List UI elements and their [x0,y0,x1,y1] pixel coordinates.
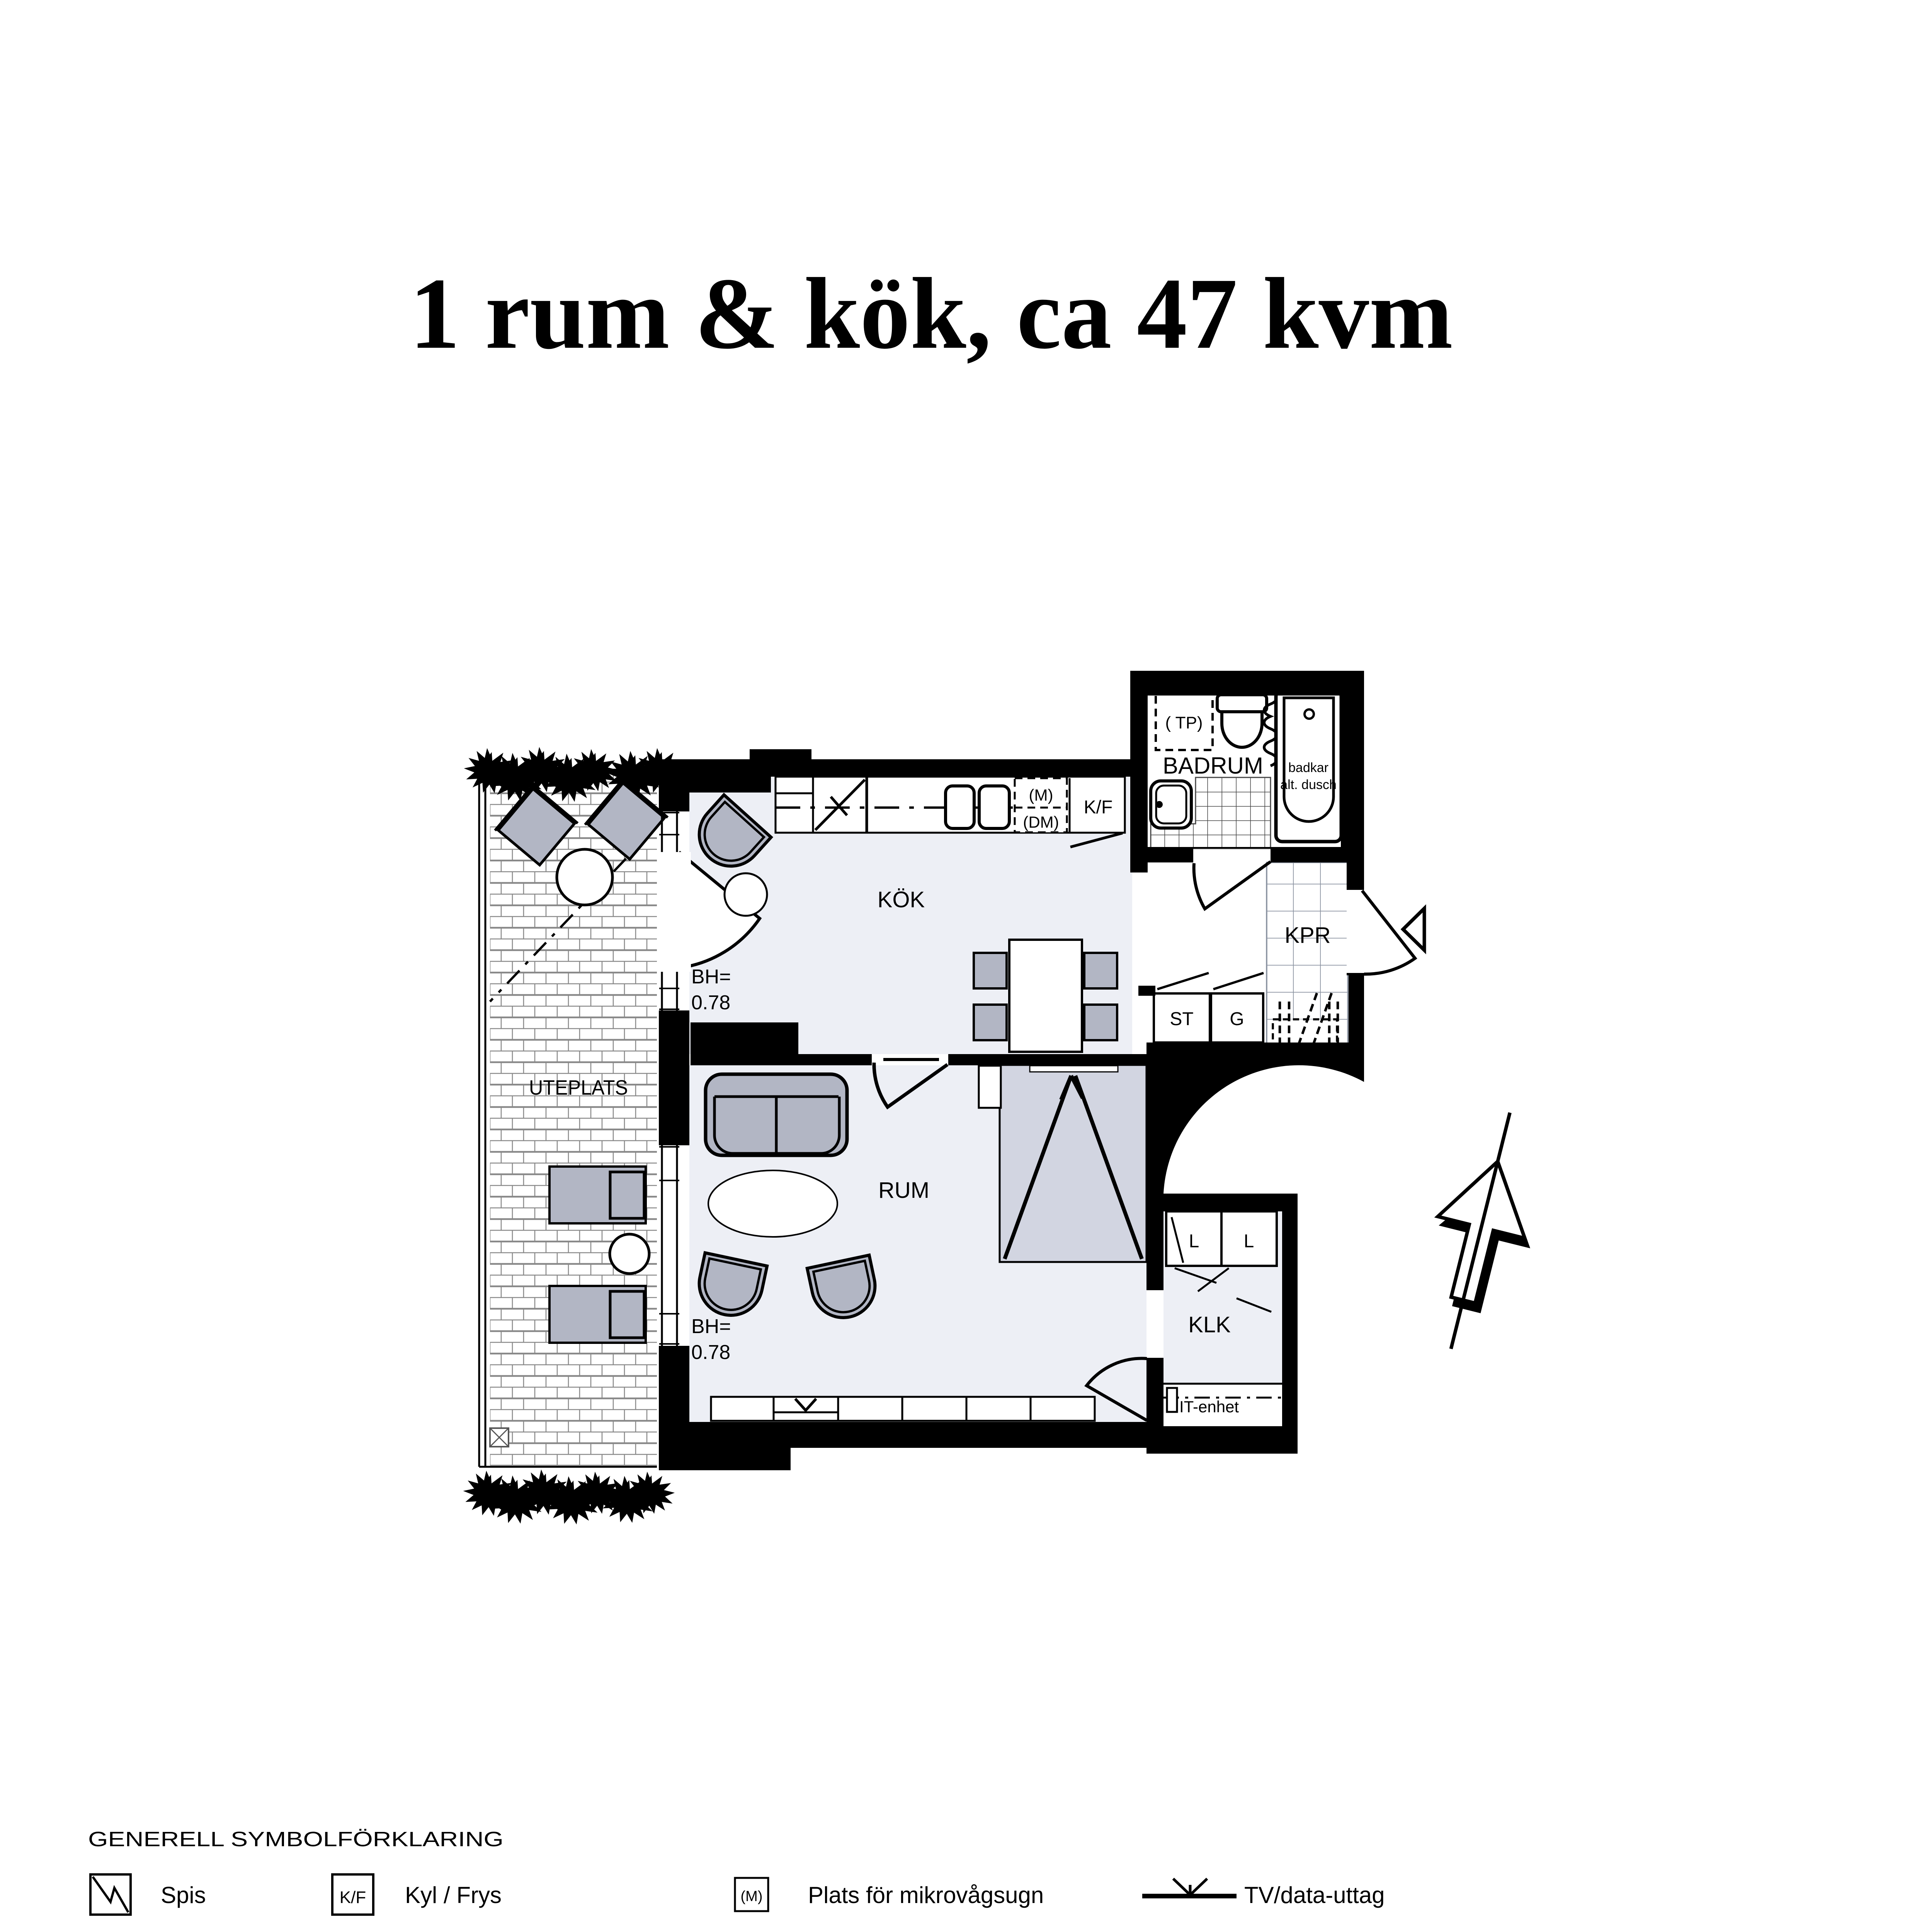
svg-text:(M): (M) [1029,786,1053,804]
svg-text:TV/data-uttag: TV/data-uttag [1244,1882,1385,1908]
svg-text:(DM): (DM) [1023,813,1059,831]
svg-text:L: L [1189,1231,1199,1252]
svg-text:Kyl / Frys: Kyl / Frys [405,1882,502,1908]
svg-text:Plats för mikrovågsugn: Plats för mikrovågsugn [808,1882,1044,1908]
svg-text:K/F: K/F [1084,797,1113,818]
svg-text:IT-enhet: IT-enhet [1179,1398,1239,1416]
svg-text:BADRUM: BADRUM [1163,753,1263,779]
svg-text:RUM: RUM [878,1178,929,1203]
svg-text:K/F: K/F [340,1888,366,1907]
svg-text:1 rum & kök, ca 47 kvm: 1 rum & kök, ca 47 kvm [410,257,1453,370]
svg-text:( TP): ( TP) [1165,713,1203,732]
svg-text:BH=: BH= [691,966,731,988]
svg-text:ST: ST [1170,1009,1193,1029]
svg-text:0.78: 0.78 [691,1341,730,1364]
svg-text:UTEPLATS: UTEPLATS [529,1076,628,1099]
svg-text:G: G [1230,1009,1244,1029]
svg-text:Spis: Spis [161,1882,206,1908]
svg-text:KÖK: KÖK [878,887,925,912]
svg-text:KPR: KPR [1284,923,1330,948]
svg-text:GENERELL SYMBOLFÖRKLARING: GENERELL SYMBOLFÖRKLARING [88,1828,503,1851]
svg-text:KLK: KLK [1188,1312,1231,1337]
svg-text:(M): (M) [741,1888,763,1905]
svg-text:alt. dusch: alt. dusch [1280,777,1337,792]
svg-text:badkar: badkar [1288,760,1328,775]
svg-text:BH=: BH= [691,1315,731,1338]
svg-text:0.78: 0.78 [691,992,730,1014]
svg-text:L: L [1244,1231,1254,1252]
